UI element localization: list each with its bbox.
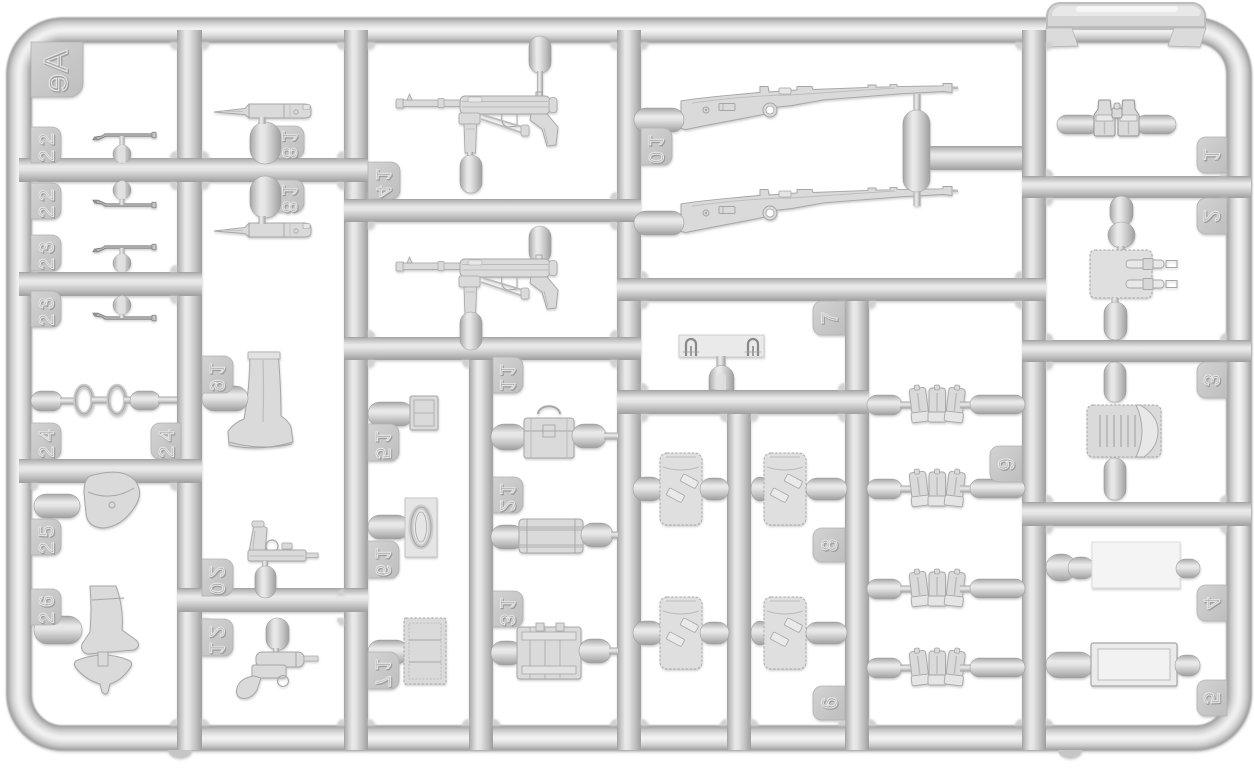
svg-text:9: 9: [994, 458, 1019, 470]
svg-text:1: 1: [1199, 149, 1224, 161]
svg-text:4: 4: [1199, 597, 1224, 609]
svg-text:61: 61: [371, 543, 394, 576]
svg-text:22: 22: [36, 128, 59, 161]
svg-text:12: 12: [205, 621, 228, 654]
svg-text:5: 5: [1199, 692, 1224, 704]
svg-text:3: 3: [1199, 374, 1224, 386]
svg-text:31: 31: [495, 592, 518, 625]
svg-text:02: 02: [205, 561, 228, 594]
svg-text:6: 6: [817, 697, 842, 709]
svg-text:23: 23: [36, 292, 59, 325]
svg-text:26: 26: [36, 590, 59, 623]
svg-text:7: 7: [817, 312, 842, 324]
svg-text:51: 51: [371, 426, 394, 459]
svg-text:71: 71: [371, 654, 394, 687]
svg-text:11: 11: [495, 359, 518, 391]
svg-text:2: 2: [1199, 210, 1224, 222]
svg-text:91: 91: [205, 358, 228, 391]
svg-text:22: 22: [36, 184, 59, 217]
svg-text:21: 21: [495, 478, 518, 511]
svg-text:01: 01: [644, 130, 667, 163]
svg-text:24: 24: [156, 424, 179, 457]
svg-text:23: 23: [36, 236, 59, 269]
svg-text:41: 41: [371, 164, 394, 197]
svg-text:24: 24: [36, 424, 59, 457]
svg-text:Ae: Ae: [37, 50, 74, 94]
svg-text:25: 25: [36, 520, 59, 553]
svg-text:8: 8: [817, 539, 842, 551]
